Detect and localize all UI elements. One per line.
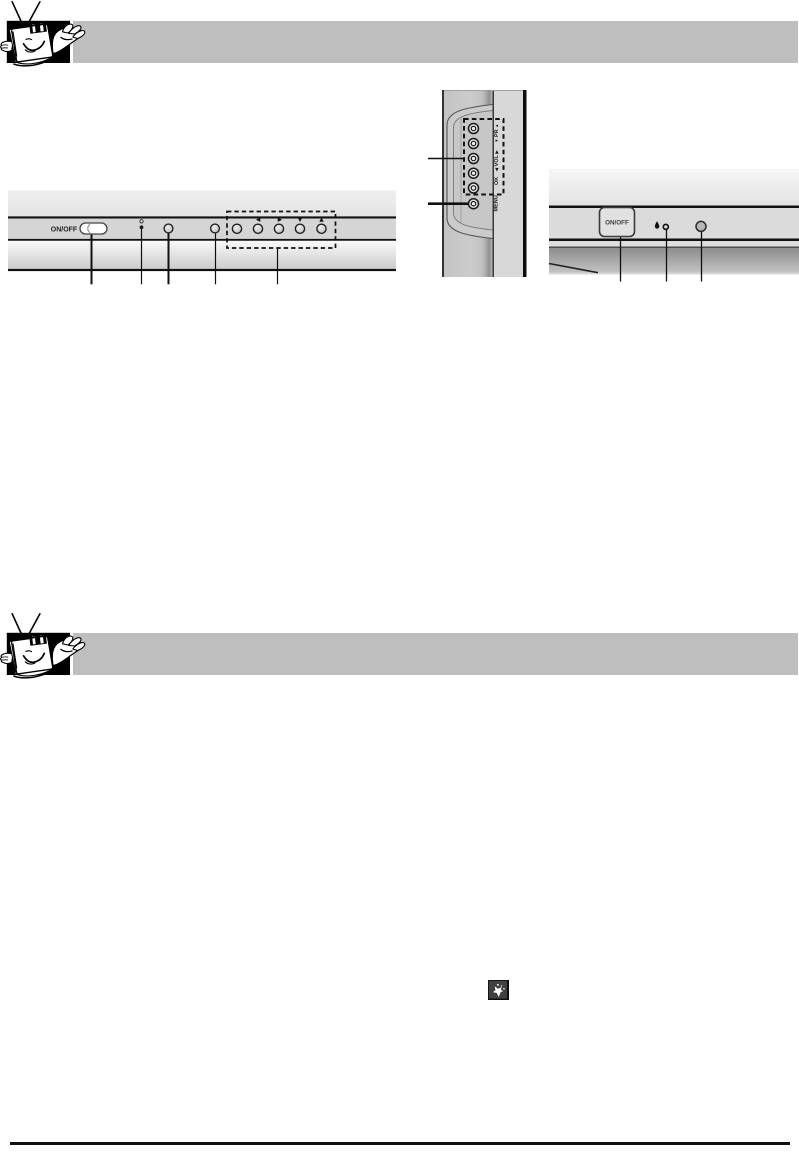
svg-text:ON/OFF: ON/OFF <box>605 219 629 226</box>
svg-text:OK: OK <box>494 177 500 185</box>
svg-text:ON/OFF: ON/OFF <box>51 226 78 233</box>
svg-text:MENU: MENU <box>493 195 499 211</box>
